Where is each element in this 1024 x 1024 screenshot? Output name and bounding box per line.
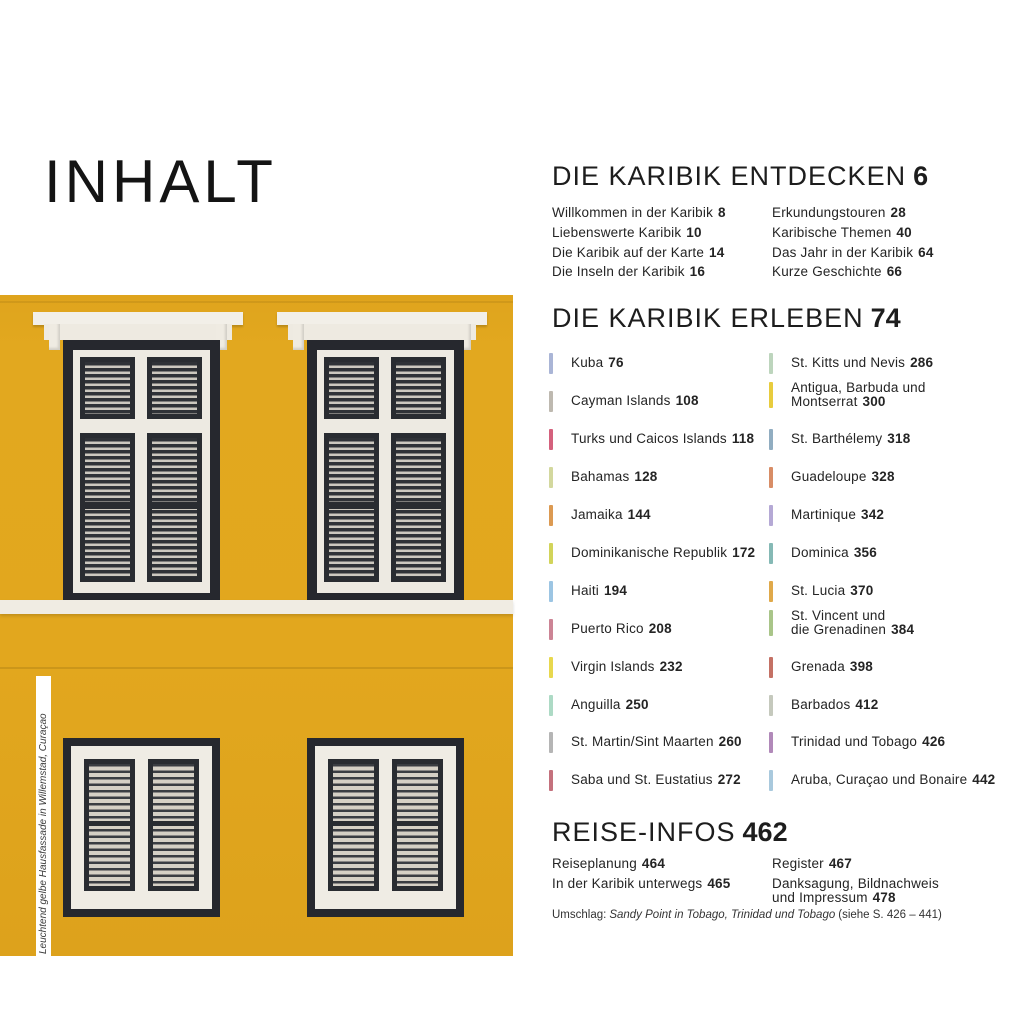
color-tick [549, 505, 553, 526]
color-tick [549, 543, 553, 564]
toc-entry-reiseplanung: Reiseplanung 464 [552, 857, 665, 871]
wall-ledge [0, 600, 513, 614]
color-tick [549, 770, 553, 791]
shutter [80, 433, 135, 582]
toc-item-st-martin: St. Martin/Sint Maarten 260 [549, 731, 742, 753]
color-tick [549, 353, 553, 374]
toc-item-cayman-islands: Cayman Islands 108 [549, 390, 699, 412]
upper-window-right [277, 312, 487, 605]
color-tick [769, 429, 773, 450]
toc-item-puerto-rico: Puerto Rico 208 [549, 618, 672, 640]
shutter [324, 433, 379, 582]
color-tick [549, 657, 553, 678]
shutter [80, 357, 135, 419]
shutter [391, 433, 446, 582]
toc-item-antigua: Antigua, Barbuda und Montserrat 300 [769, 380, 926, 410]
color-tick [769, 695, 773, 716]
shutter [147, 357, 202, 419]
section-title-text: REISE-INFOS [552, 817, 736, 847]
entdecken-column-2: Erkundungstouren 28 Karibische Themen 40… [772, 203, 934, 282]
toc-entry-unterwegs: In der Karibik unterwegs 465 [552, 877, 730, 891]
toc-item-bahamas: Bahamas 128 [549, 466, 658, 488]
lower-window-right [307, 738, 464, 917]
toc-item-saba: Saba und St. Eustatius 272 [549, 769, 741, 791]
cornice-fascia [288, 324, 476, 340]
toc-entry-danksagung: Danksagung, Bildnachweis und Impressum 4… [772, 877, 939, 905]
toc-entry-register: Register 467 [772, 857, 852, 871]
shutter [84, 759, 135, 891]
color-tick [549, 391, 553, 412]
upper-window-left [33, 312, 243, 605]
color-tick [769, 382, 773, 408]
shutter [328, 759, 379, 891]
page-title: INHALT [44, 150, 277, 214]
toc-item-st-barthelemy: St. Barthélemy 318 [769, 428, 910, 450]
toc-item-dominica: Dominica 356 [769, 542, 877, 564]
wall-top-seam [0, 301, 513, 303]
section-title-erleben: DIE KARIBIK ERLEBEN74 [552, 302, 901, 334]
shutter [147, 433, 202, 582]
photo-caption: Leuchtend gelbe Hausfassade in Willemsta… [36, 678, 51, 954]
toc-entry: Das Jahr in der Karibik 64 [772, 243, 934, 263]
window-frame [307, 340, 464, 605]
photo-caption-strip: Leuchtend gelbe Hausfassade in Willemsta… [36, 676, 51, 956]
color-tick [549, 429, 553, 450]
color-tick [769, 581, 773, 602]
toc-item-jamaika: Jamaika 144 [549, 504, 651, 526]
wall-seam [0, 667, 513, 669]
window-inner-frame [73, 350, 210, 593]
color-tick [549, 467, 553, 488]
color-tick [549, 732, 553, 753]
cover-note: Umschlag:Sandy Point in Tobago, Trinidad… [552, 909, 945, 921]
toc-item-kuba: Kuba 76 [549, 352, 624, 374]
toc-entry: Willkommen in der Karibik 8 [552, 203, 726, 223]
color-tick [549, 581, 553, 602]
section-title-text: DIE KARIBIK ERLEBEN [552, 303, 864, 333]
section-title-entdecken: DIE KARIBIK ENTDECKEN6 [552, 160, 928, 192]
section-page-number: 74 [871, 303, 901, 333]
shutter [324, 357, 379, 419]
toc-item-st-vincent: St. Vincent und die Grenadinen 384 [769, 608, 914, 638]
shutter [391, 357, 446, 419]
toc-item-haiti: Haiti 194 [549, 580, 627, 602]
toc-item-guadeloupe: Guadeloupe 328 [769, 466, 895, 488]
section-title-reiseinfos: REISE-INFOS462 [552, 816, 788, 848]
color-tick [769, 657, 773, 678]
color-tick [769, 770, 773, 791]
toc-item-anguilla: Anguilla 250 [549, 694, 649, 716]
section-page-number: 462 [743, 817, 788, 847]
window-inner-frame [315, 746, 456, 909]
cornice-corbel [293, 324, 304, 350]
cover-note-prefix: Umschlag: [552, 909, 606, 921]
section-page-number: 6 [913, 161, 928, 191]
color-tick [769, 467, 773, 488]
toc-entry: Die Karibik auf der Karte 14 [552, 243, 726, 263]
toc-item-st-lucia: St. Lucia 370 [769, 580, 873, 602]
entdecken-column-1: Willkommen in der Karibik 8 Liebenswerte… [552, 203, 726, 282]
shutter [392, 759, 443, 891]
toc-item-turks-und-caicos: Turks und Caicos Islands 118 [549, 428, 754, 450]
window-frame [63, 340, 220, 605]
toc-item-virgin-islands: Virgin Islands 232 [549, 656, 683, 678]
book-toc-page: INHALT [0, 0, 1024, 1024]
lower-window-left [63, 738, 220, 917]
color-tick [549, 619, 553, 640]
toc-item-st-kitts: St. Kitts und Nevis 286 [769, 352, 933, 374]
cornice-fascia [44, 324, 232, 340]
cover-note-reference: (siehe S. 426 – 441) [838, 909, 942, 921]
shutter [148, 759, 199, 891]
toc-entry: Erkundungstouren 28 [772, 203, 934, 223]
cover-note-title: Sandy Point in Tobago, Trinidad und Toba… [609, 909, 835, 921]
window-inner-frame [71, 746, 212, 909]
color-tick [769, 732, 773, 753]
toc-entry: Kurze Geschichte 66 [772, 262, 934, 282]
color-tick [769, 543, 773, 564]
color-tick [549, 695, 553, 716]
section-title-text: DIE KARIBIK ENTDECKEN [552, 161, 906, 191]
toc-item-barbados: Barbados 412 [769, 694, 878, 716]
toc-item-aruba-curacao-bonaire: Aruba, Curaçao und Bonaire 442 [769, 769, 995, 791]
facade-photo: Leuchtend gelbe Hausfassade in Willemsta… [0, 295, 513, 956]
color-tick [769, 610, 773, 636]
toc-entry: Die Inseln der Karibik 16 [552, 262, 726, 282]
toc-item-grenada: Grenada 398 [769, 656, 873, 678]
toc-item-martinique: Martinique 342 [769, 504, 884, 526]
color-tick [769, 353, 773, 374]
color-tick [769, 505, 773, 526]
toc-entry: Karibische Themen 40 [772, 223, 934, 243]
cornice-corbel [49, 324, 60, 350]
toc-entry: Liebenswerte Karibik 10 [552, 223, 726, 243]
toc-item-dominikanische-republik: Dominikanische Republik 172 [549, 542, 755, 564]
window-inner-frame [317, 350, 454, 593]
toc-item-trinidad-und-tobago: Trinidad und Tobago 426 [769, 731, 945, 753]
